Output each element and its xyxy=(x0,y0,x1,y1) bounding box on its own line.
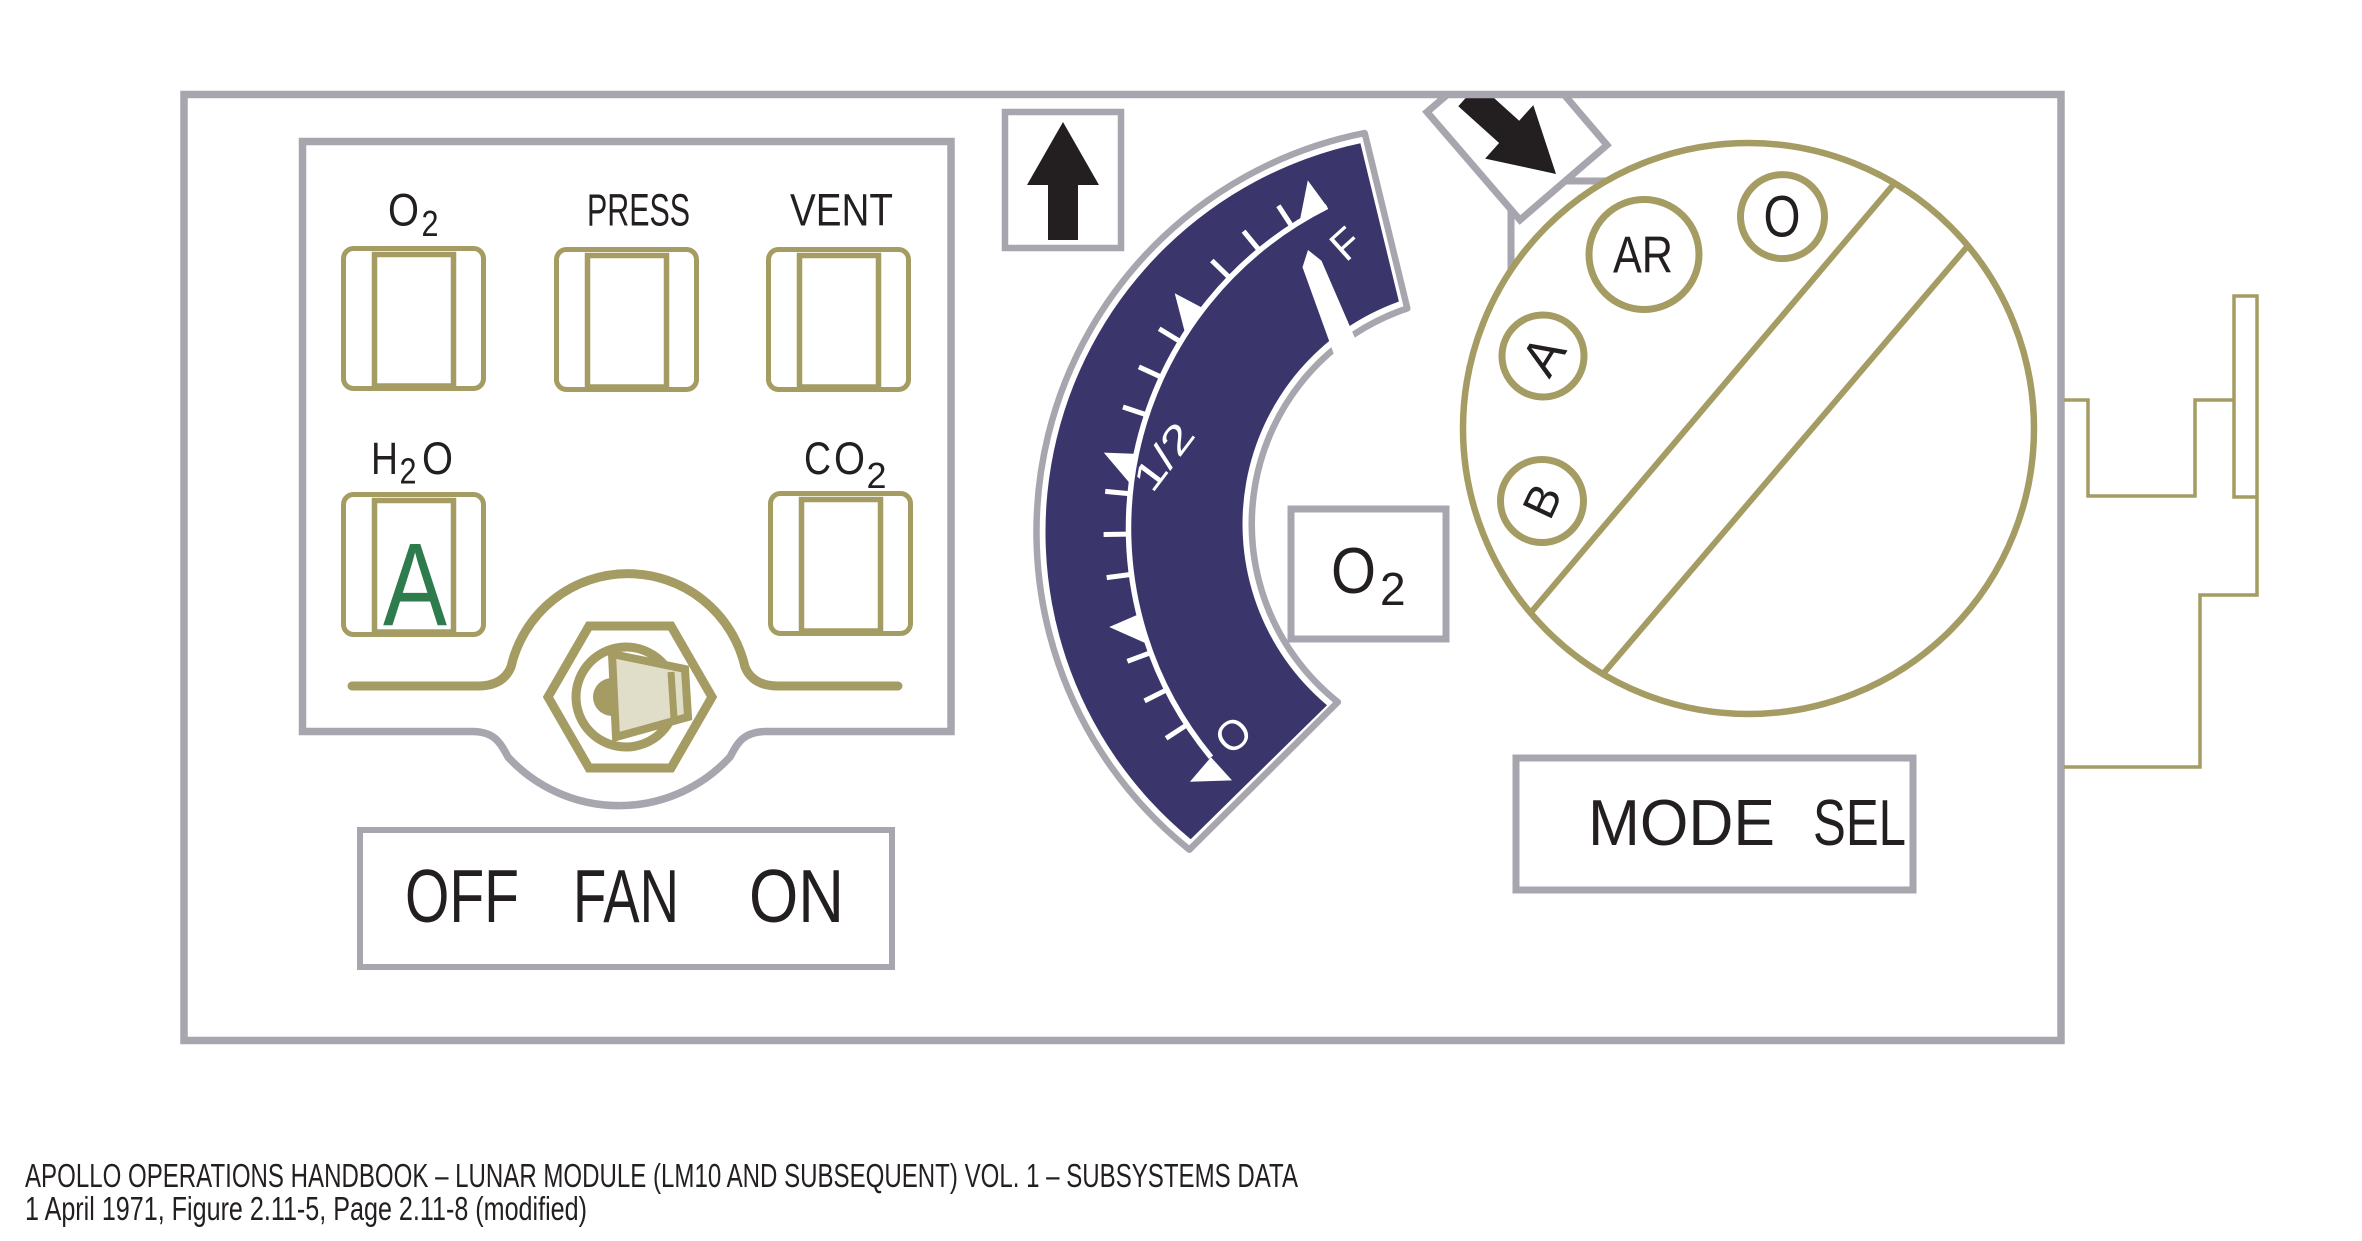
svg-text:2: 2 xyxy=(1380,563,1406,615)
svg-text:O: O xyxy=(834,433,865,484)
svg-text:PRESS: PRESS xyxy=(587,185,690,236)
svg-text:2: 2 xyxy=(400,451,417,492)
svg-text:MODE: MODE xyxy=(1588,786,1775,859)
svg-text:SEL: SEL xyxy=(1813,786,1906,859)
svg-text:2: 2 xyxy=(867,455,887,496)
svg-text:O: O xyxy=(1331,534,1376,607)
svg-text:FAN: FAN xyxy=(573,854,679,938)
svg-text:VENT: VENT xyxy=(790,185,893,236)
svg-text:A: A xyxy=(383,519,447,651)
svg-text:C: C xyxy=(804,433,831,484)
svg-text:ON: ON xyxy=(749,854,844,938)
svg-text:APOLLO OPERATIONS HANDBOOK – L: APOLLO OPERATIONS HANDBOOK – LUNAR MODUL… xyxy=(25,1157,1298,1194)
svg-text:O: O xyxy=(422,433,453,484)
svg-text:AR: AR xyxy=(1613,227,1673,285)
svg-text:2: 2 xyxy=(422,203,439,244)
svg-text:OFF: OFF xyxy=(405,854,519,938)
svg-text:H: H xyxy=(371,433,398,484)
svg-text:O: O xyxy=(388,185,419,236)
svg-text:1 April 1971, Figure 2.11-5, P: 1 April 1971, Figure 2.11-5, Page 2.11-8… xyxy=(25,1190,587,1227)
svg-text:O: O xyxy=(1764,185,1801,250)
